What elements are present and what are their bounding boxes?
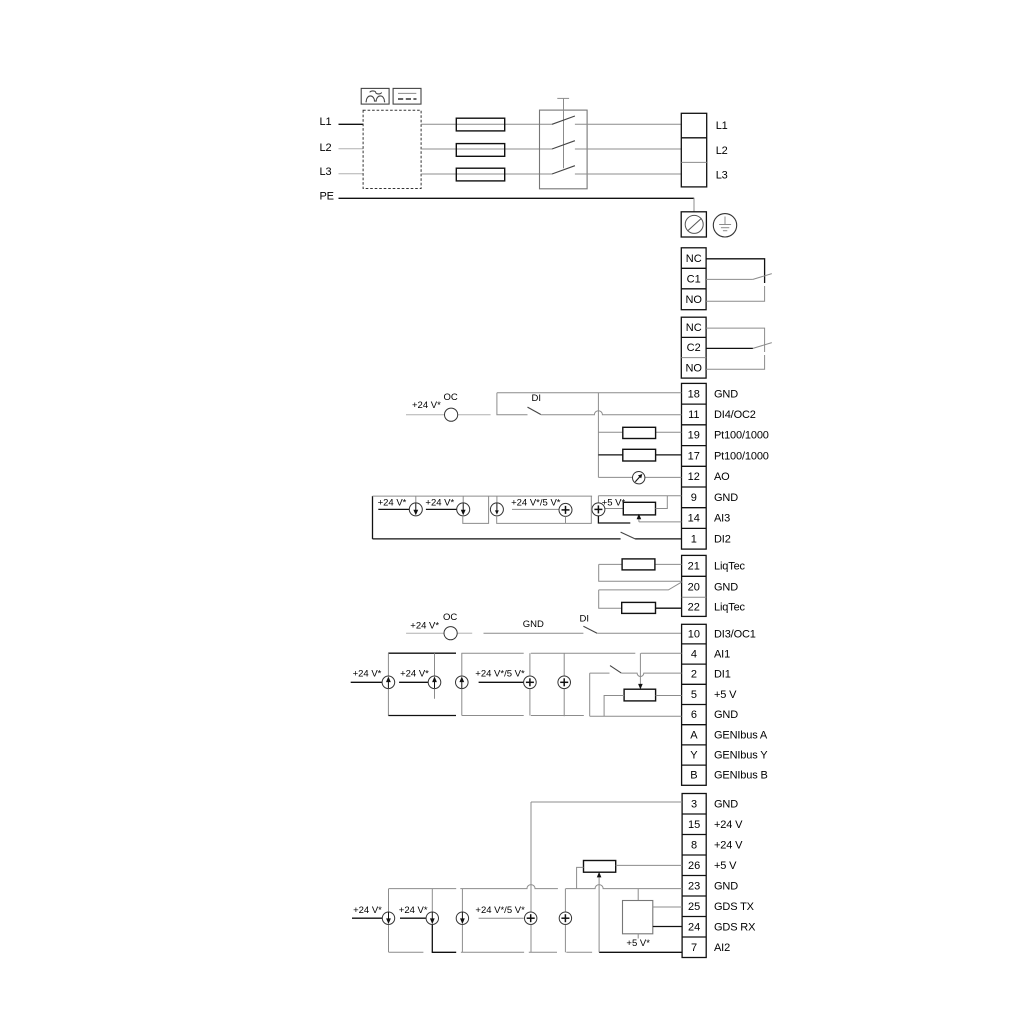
svg-text:GND: GND <box>714 798 738 810</box>
svg-text:3: 3 <box>691 798 697 810</box>
svg-text:26: 26 <box>688 860 700 872</box>
svg-text:+24 V*: +24 V* <box>399 905 428 916</box>
svg-text:+24 V*: +24 V* <box>378 497 407 508</box>
svg-text:GND: GND <box>714 709 738 721</box>
svg-text:OC: OC <box>444 392 458 403</box>
svg-text:+24 V*: +24 V* <box>353 905 382 916</box>
svg-text:10: 10 <box>688 629 700 641</box>
svg-text:15: 15 <box>688 819 700 831</box>
svg-text:GND: GND <box>714 492 738 504</box>
svg-text:+5 V*: +5 V* <box>602 497 626 508</box>
svg-text:6: 6 <box>691 709 697 721</box>
svg-text:+5 V*: +5 V* <box>626 938 650 949</box>
svg-text:9: 9 <box>691 492 697 504</box>
svg-text:DI4/OC2: DI4/OC2 <box>714 409 756 421</box>
svg-text:Y: Y <box>690 750 698 762</box>
svg-text:+24 V*/5 V*: +24 V*/5 V* <box>475 668 525 679</box>
svg-text:+24 V*/5 V*: +24 V*/5 V* <box>475 905 525 916</box>
svg-text:12: 12 <box>688 471 700 483</box>
svg-text:+24 V*: +24 V* <box>400 668 429 679</box>
svg-text:+5 V: +5 V <box>714 860 737 872</box>
svg-text:24: 24 <box>688 921 700 933</box>
svg-text:OC: OC <box>443 612 457 623</box>
svg-text:4: 4 <box>691 649 697 661</box>
svg-text:DI: DI <box>580 614 590 625</box>
svg-text:C2: C2 <box>687 342 701 354</box>
svg-text:NO: NO <box>685 363 702 375</box>
svg-text:DI1: DI1 <box>714 669 731 681</box>
svg-text:23: 23 <box>688 880 700 892</box>
svg-text:PE: PE <box>320 191 334 203</box>
svg-text:DI: DI <box>532 393 542 404</box>
svg-text:2: 2 <box>691 669 697 681</box>
svg-text:B: B <box>690 770 697 782</box>
svg-text:+24 V*: +24 V* <box>412 400 441 411</box>
svg-text:AI1: AI1 <box>714 649 730 661</box>
svg-text:8: 8 <box>691 839 697 851</box>
svg-text:+24 V: +24 V <box>714 819 743 831</box>
svg-text:+24 V*: +24 V* <box>425 497 454 508</box>
svg-text:+24 V*: +24 V* <box>353 668 382 679</box>
svg-text:11: 11 <box>688 409 699 421</box>
svg-text:25: 25 <box>688 901 700 913</box>
svg-text:GND: GND <box>714 388 738 400</box>
svg-text:NO: NO <box>685 294 702 306</box>
svg-text:5: 5 <box>691 689 697 701</box>
svg-text:17: 17 <box>688 451 700 463</box>
svg-text:L1: L1 <box>716 120 728 132</box>
svg-text:GND: GND <box>714 581 738 593</box>
svg-text:19: 19 <box>688 430 700 442</box>
svg-text:A: A <box>690 729 698 741</box>
svg-text:L3: L3 <box>320 166 332 178</box>
svg-text:GENIbus Y: GENIbus Y <box>714 750 768 762</box>
svg-text:AI2: AI2 <box>714 942 730 954</box>
svg-text:GND: GND <box>714 880 738 892</box>
svg-text:+24 V*: +24 V* <box>410 620 439 631</box>
svg-text:GENIbus A: GENIbus A <box>714 729 768 741</box>
svg-text:1: 1 <box>691 533 697 545</box>
svg-text:AI3: AI3 <box>714 513 730 525</box>
svg-text:20: 20 <box>688 581 700 593</box>
svg-text:+24 V: +24 V <box>714 839 743 851</box>
svg-text:LiqTec: LiqTec <box>714 601 746 613</box>
svg-text:+5 V: +5 V <box>714 689 737 701</box>
svg-text:DI2: DI2 <box>714 533 731 545</box>
svg-text:GENIbus B: GENIbus B <box>714 770 768 782</box>
svg-text:GND: GND <box>523 619 544 630</box>
svg-text:DI3/OC1: DI3/OC1 <box>714 629 756 641</box>
svg-text:L1: L1 <box>320 116 332 128</box>
svg-text:14: 14 <box>688 513 700 525</box>
svg-text:18: 18 <box>688 388 700 400</box>
svg-text:AO: AO <box>714 471 730 483</box>
svg-text:7: 7 <box>691 942 697 954</box>
svg-text:Pt100/1000: Pt100/1000 <box>714 451 769 463</box>
svg-text:+24 V*/5 V*: +24 V*/5 V* <box>511 497 561 508</box>
svg-text:L2: L2 <box>716 145 728 157</box>
svg-text:NC: NC <box>686 322 702 334</box>
svg-text:GDS RX: GDS RX <box>714 921 756 933</box>
svg-text:L2: L2 <box>320 142 332 154</box>
svg-text:C1: C1 <box>687 273 701 285</box>
svg-text:GDS TX: GDS TX <box>714 901 755 913</box>
svg-text:NC: NC <box>686 253 702 265</box>
svg-text:21: 21 <box>688 560 700 572</box>
svg-text:Pt100/1000: Pt100/1000 <box>714 430 769 442</box>
svg-text:L3: L3 <box>716 169 728 181</box>
svg-text:22: 22 <box>688 601 700 613</box>
svg-text:LiqTec: LiqTec <box>714 560 746 572</box>
